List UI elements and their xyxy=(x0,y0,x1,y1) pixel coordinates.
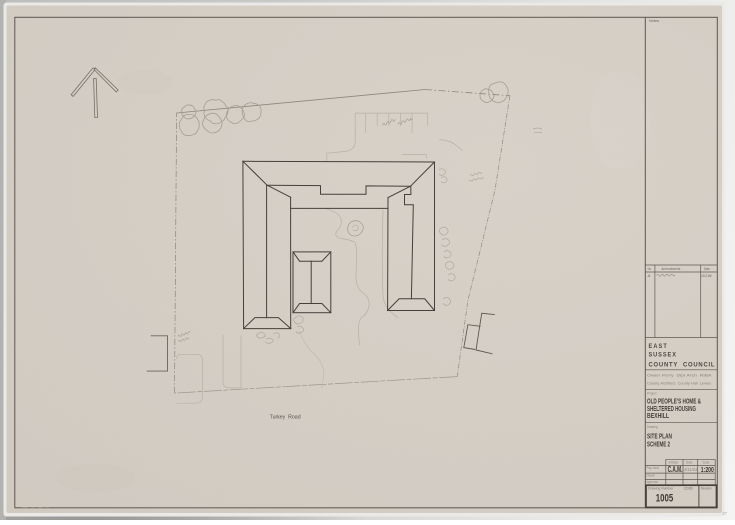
svg-text:EAST: EAST xyxy=(649,343,669,350)
svg-text:Date: Date xyxy=(686,461,693,465)
svg-text:Turkey Road: Turkey Road xyxy=(270,414,301,420)
svg-text:1005: 1005 xyxy=(656,492,673,504)
svg-text:Owen Perry Dipl Arch RIBA: Owen Perry Dipl Arch RIBA xyxy=(647,374,712,378)
svg-text:Drawing: Drawing xyxy=(647,425,658,429)
svg-text:Scale: Scale xyxy=(703,461,710,465)
svg-text:27: 27 xyxy=(723,511,728,516)
svg-text:C.A.M.: C.A.M. xyxy=(668,465,683,474)
svg-text:4/11/83: 4/11/83 xyxy=(684,467,698,472)
svg-text:No: No xyxy=(648,267,651,271)
svg-text:COUNTY COUNCIL: COUNTY COUNCIL xyxy=(649,361,716,368)
svg-text:Notes: Notes xyxy=(649,19,659,23)
svg-text:Initials: Initials xyxy=(669,461,679,465)
svg-text:1:200: 1:200 xyxy=(701,465,714,474)
svg-text:Prep./Arch: Prep./Arch xyxy=(646,466,659,470)
svg-text:Project: Project xyxy=(647,391,657,395)
svg-text:10.2.84: 10.2.84 xyxy=(701,274,712,278)
svg-text:County Architect County Hall: County Architect County Hall Lewes xyxy=(647,381,711,385)
svg-text:Amendments: Amendments xyxy=(661,267,680,271)
svg-text:BEXHILL: BEXHILL xyxy=(647,411,669,420)
svg-text:Approved: Approved xyxy=(646,480,658,484)
svg-text:Date: Date xyxy=(704,267,710,271)
svg-text:A.: A. xyxy=(647,274,651,278)
svg-text:CC/83: CC/83 xyxy=(684,487,693,491)
svg-text:SUSSEX: SUSSEX xyxy=(649,352,677,359)
svg-text:Drawn: Drawn xyxy=(646,474,655,478)
svg-text:Drawing Number: Drawing Number xyxy=(648,487,674,491)
svg-text:SCHEME 2: SCHEME 2 xyxy=(647,440,670,449)
svg-text:Revision: Revision xyxy=(701,487,712,491)
